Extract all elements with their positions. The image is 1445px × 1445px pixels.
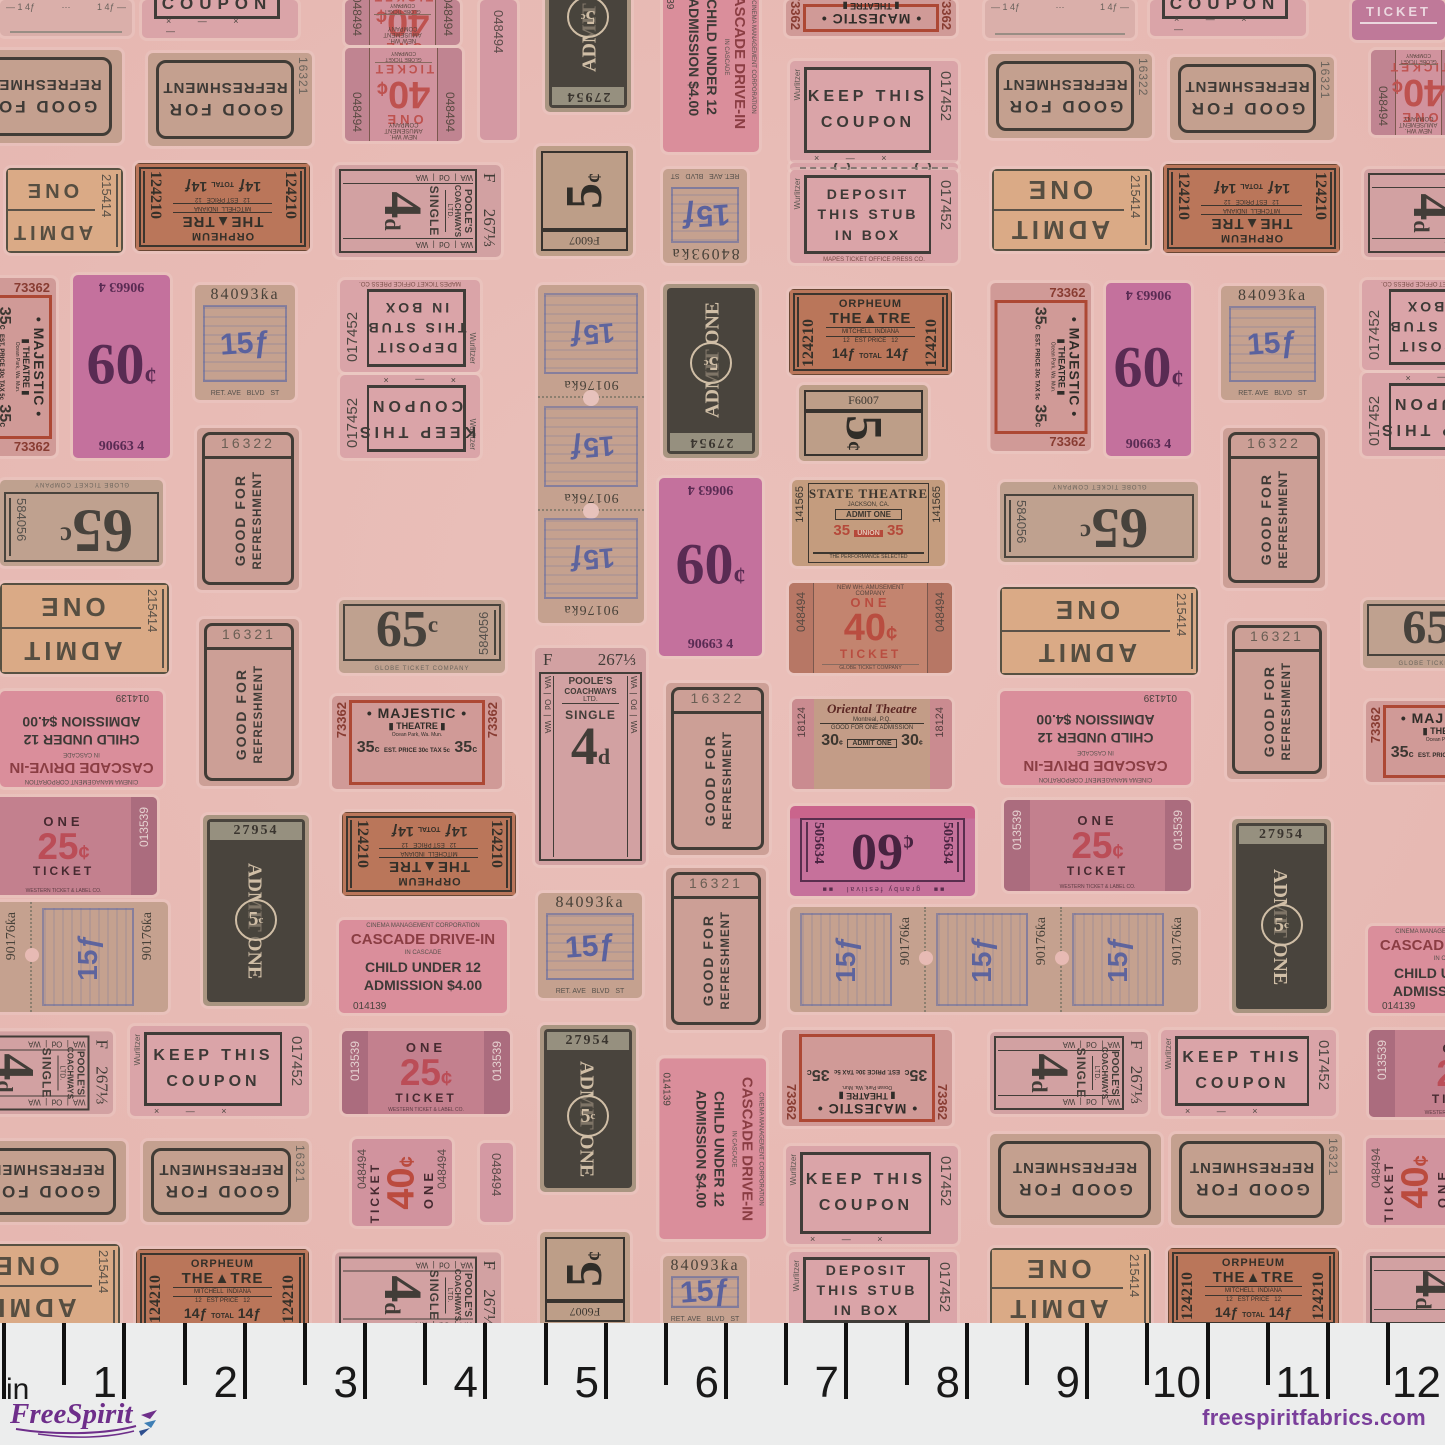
svg-text:FreeSpirit: FreeSpirit xyxy=(9,1398,133,1430)
